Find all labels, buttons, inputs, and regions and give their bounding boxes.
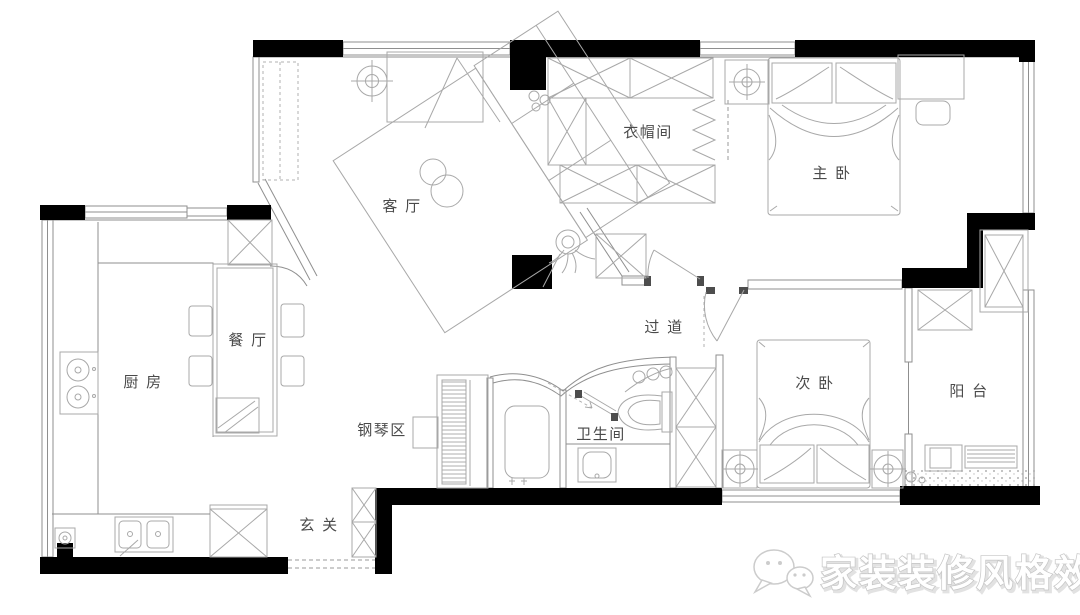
room-label-piano-area: 钢琴区 <box>357 421 407 439</box>
bathroom-walls <box>487 355 723 488</box>
room-label-second-bedroom: 次 卧 <box>795 374 834 392</box>
room-labels: 客 厅 衣帽间 主 卧 餐 厅 厨 房 过 道 钢琴区 卫生间 次 卧 阳 台 … <box>123 123 988 534</box>
stove <box>60 352 98 414</box>
chair <box>189 306 212 336</box>
pebble-floor <box>905 468 1035 486</box>
room-label-cloakroom: 衣帽间 <box>623 123 673 141</box>
window-kitchen-top <box>85 206 227 218</box>
floor-plan-canvas: 客 厅 衣帽间 主 卧 餐 厅 厨 房 过 道 钢琴区 卫生间 次 卧 阳 台 … <box>0 0 1080 615</box>
watermark-text: 家装装修风格效果图 <box>820 552 1080 595</box>
bed-master <box>768 58 900 215</box>
window-balcony-right <box>1023 290 1034 488</box>
window-master-right <box>1023 57 1034 213</box>
room-label-entry: 玄 关 <box>299 516 338 534</box>
bed-second <box>757 340 870 488</box>
dining-furniture <box>189 264 304 436</box>
living-room-furniture <box>263 11 671 332</box>
chat-bubbles-icon <box>754 550 813 596</box>
toilet <box>618 392 672 432</box>
dining-table <box>213 264 277 436</box>
window-master-top <box>700 42 795 55</box>
splayed-wall-dining <box>258 179 317 286</box>
chair <box>281 304 304 337</box>
sofa-and-rug <box>332 11 672 332</box>
room-label-dining: 餐 厅 <box>228 331 267 349</box>
dining-corner-cabinet <box>228 220 272 265</box>
balcony-bay <box>387 52 483 122</box>
wardrobe-top <box>548 58 713 98</box>
bathroom-tall-cabinet <box>676 368 716 487</box>
entry-tall-cabinet <box>352 488 376 557</box>
bench-folded <box>216 398 259 433</box>
window-kitchen-left <box>42 220 53 557</box>
second-bedroom-furniture <box>722 340 906 488</box>
master-bedroom-furniture <box>725 55 964 215</box>
living-left-wall <box>253 57 259 182</box>
spotlight-row <box>625 366 672 392</box>
corridor-cabinet <box>596 234 646 278</box>
door-master <box>648 250 700 279</box>
window-living-top <box>343 42 510 55</box>
room-label-balcony: 阳 台 <box>949 382 988 400</box>
room-label-kitchen: 厨 房 <box>123 373 162 391</box>
entry-shoe-cabinet <box>210 505 267 557</box>
room-label-living: 客 厅 <box>382 197 421 215</box>
room-label-master-bedroom: 主 卧 <box>812 164 851 182</box>
watermark: 家装装修风格效果图 家装装修风格效果图 <box>754 550 1080 597</box>
piano-area-furniture <box>413 375 488 488</box>
bathroom-door <box>548 383 618 421</box>
bathtub <box>505 406 549 485</box>
drying-rack <box>965 446 1017 468</box>
open-door-lines <box>425 58 500 128</box>
floor-plan-page: 客 厅 衣帽间 主 卧 餐 厅 厨 房 过 道 钢琴区 卫生间 次 卧 阳 台 … <box>0 0 1080 615</box>
door-second-bedroom <box>704 290 744 341</box>
balcony-furniture <box>905 445 1035 486</box>
nightstand-second-right <box>870 450 906 488</box>
coffee-table <box>420 159 463 207</box>
folding-door-zigzag <box>693 100 715 160</box>
corridor-walls <box>580 208 902 350</box>
balcony-partition <box>905 288 912 488</box>
counter-edge <box>98 263 213 437</box>
wardrobe-left <box>548 98 586 165</box>
nightstand-master <box>725 60 769 104</box>
kitchen-sink <box>115 517 173 556</box>
tall-shelf-dashed <box>263 62 298 180</box>
room-label-corridor: 过 道 <box>644 318 683 336</box>
room-label-bathroom: 卫生间 <box>576 425 626 443</box>
nightstand-second-left <box>722 450 758 488</box>
chair <box>281 356 304 386</box>
chair <box>189 356 212 386</box>
wardrobe-bottom <box>560 165 715 203</box>
entry-threshold-dashed <box>288 560 375 568</box>
washing-machine-balcony <box>925 445 962 471</box>
desk-master <box>898 55 964 125</box>
piano-bench <box>413 417 438 448</box>
window-second-bedroom-bottom <box>722 490 900 502</box>
washbasin <box>578 448 616 482</box>
